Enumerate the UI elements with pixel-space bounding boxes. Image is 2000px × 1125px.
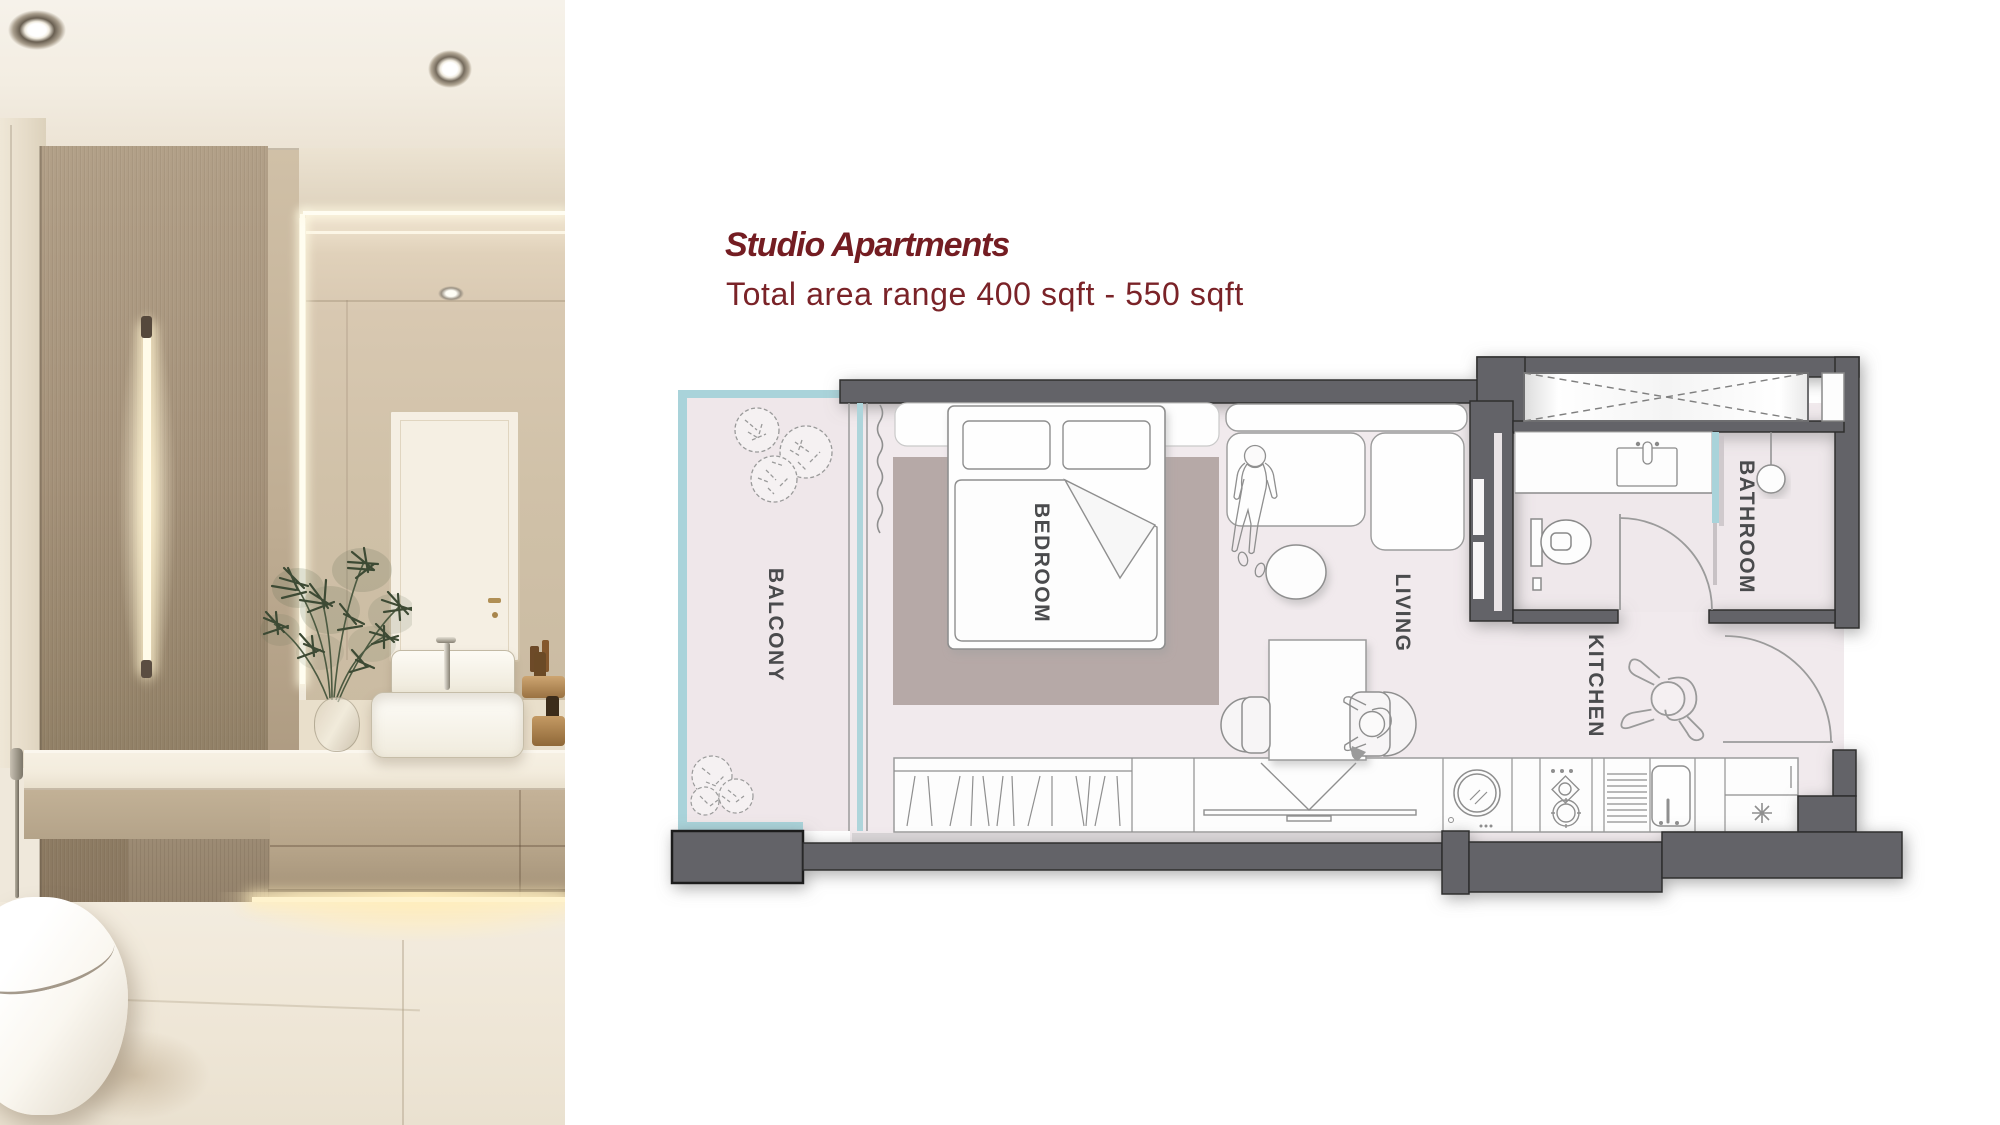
svg-text:BALCONY: BALCONY bbox=[764, 568, 787, 682]
svg-text:LIVING: LIVING bbox=[1391, 573, 1414, 652]
svg-text:KITCHEN: KITCHEN bbox=[1584, 634, 1607, 738]
svg-text:BATHROOM: BATHROOM bbox=[1735, 460, 1758, 594]
svg-text:BEDROOM: BEDROOM bbox=[1030, 503, 1053, 623]
